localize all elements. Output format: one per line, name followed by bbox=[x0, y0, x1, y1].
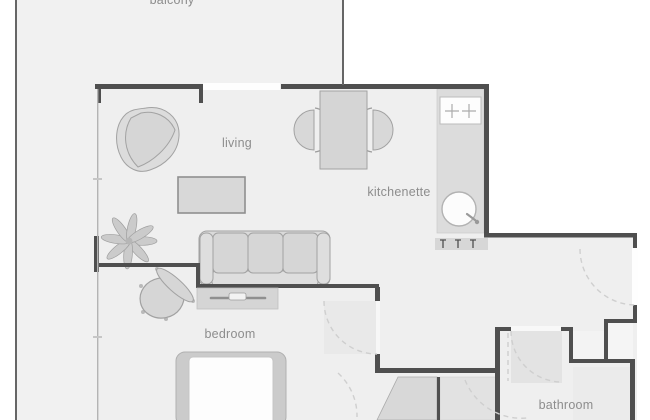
window-opening bbox=[203, 83, 280, 90]
wall-segment bbox=[375, 368, 500, 373]
facade-tick bbox=[93, 178, 102, 180]
wall-segment bbox=[437, 377, 440, 420]
tv-mount bbox=[229, 293, 246, 300]
entrance-opening bbox=[632, 248, 638, 305]
radiator bbox=[435, 238, 488, 250]
bed-mattress bbox=[189, 357, 273, 420]
room-label-living: living bbox=[222, 136, 252, 150]
sofa bbox=[199, 231, 330, 286]
floor-plan-drawing bbox=[0, 0, 650, 420]
wall-segment bbox=[97, 263, 198, 267]
wall-segment bbox=[197, 284, 379, 288]
wall-segment bbox=[375, 287, 380, 301]
sofa-cushion bbox=[248, 233, 283, 273]
cooktop bbox=[440, 97, 481, 124]
plant-pot bbox=[126, 238, 133, 245]
room-label-balcony: balcony bbox=[150, 0, 195, 7]
floor-plan: balcony living kitchenette bedroom bathr… bbox=[0, 0, 650, 420]
wall-segment bbox=[569, 359, 635, 363]
facade-tick bbox=[93, 336, 102, 338]
sofa-armrest bbox=[317, 233, 330, 284]
wall-segment bbox=[630, 363, 635, 420]
wall-segment bbox=[633, 237, 637, 248]
room-label-kitchenette: kitchenette bbox=[367, 185, 430, 199]
bed bbox=[176, 352, 286, 420]
wall-segment bbox=[495, 327, 500, 420]
wall-segment bbox=[604, 319, 637, 323]
balcony-rail bbox=[15, 0, 17, 420]
wall-niche bbox=[573, 331, 604, 359]
wall-segment bbox=[281, 84, 488, 89]
exterior-niche bbox=[608, 323, 633, 363]
tv-stand bbox=[197, 288, 278, 309]
wall-segment bbox=[484, 84, 489, 237]
room-label-bathroom: bathroom bbox=[539, 398, 594, 412]
bedroom-door-opening bbox=[376, 301, 380, 354]
wall-segment bbox=[561, 327, 573, 331]
wall-segment bbox=[484, 233, 637, 238]
wall-segment bbox=[604, 319, 608, 363]
dining-table bbox=[320, 91, 367, 169]
room-label-bedroom: bedroom bbox=[204, 327, 255, 341]
coffee-table bbox=[178, 177, 245, 213]
bathroom-door-opening bbox=[511, 326, 561, 331]
wall-segment bbox=[569, 327, 573, 363]
window-facade-line bbox=[97, 89, 98, 420]
closet bbox=[440, 377, 496, 420]
sofa-armrest bbox=[200, 233, 213, 284]
sofa-cushion bbox=[213, 233, 248, 273]
sofa-cushion bbox=[283, 233, 318, 273]
bathroom-floor-shading bbox=[573, 367, 630, 420]
wall-segment bbox=[95, 84, 203, 89]
balcony-divider bbox=[342, 0, 344, 85]
wall-segment bbox=[375, 354, 380, 373]
wall-segment bbox=[199, 88, 203, 103]
